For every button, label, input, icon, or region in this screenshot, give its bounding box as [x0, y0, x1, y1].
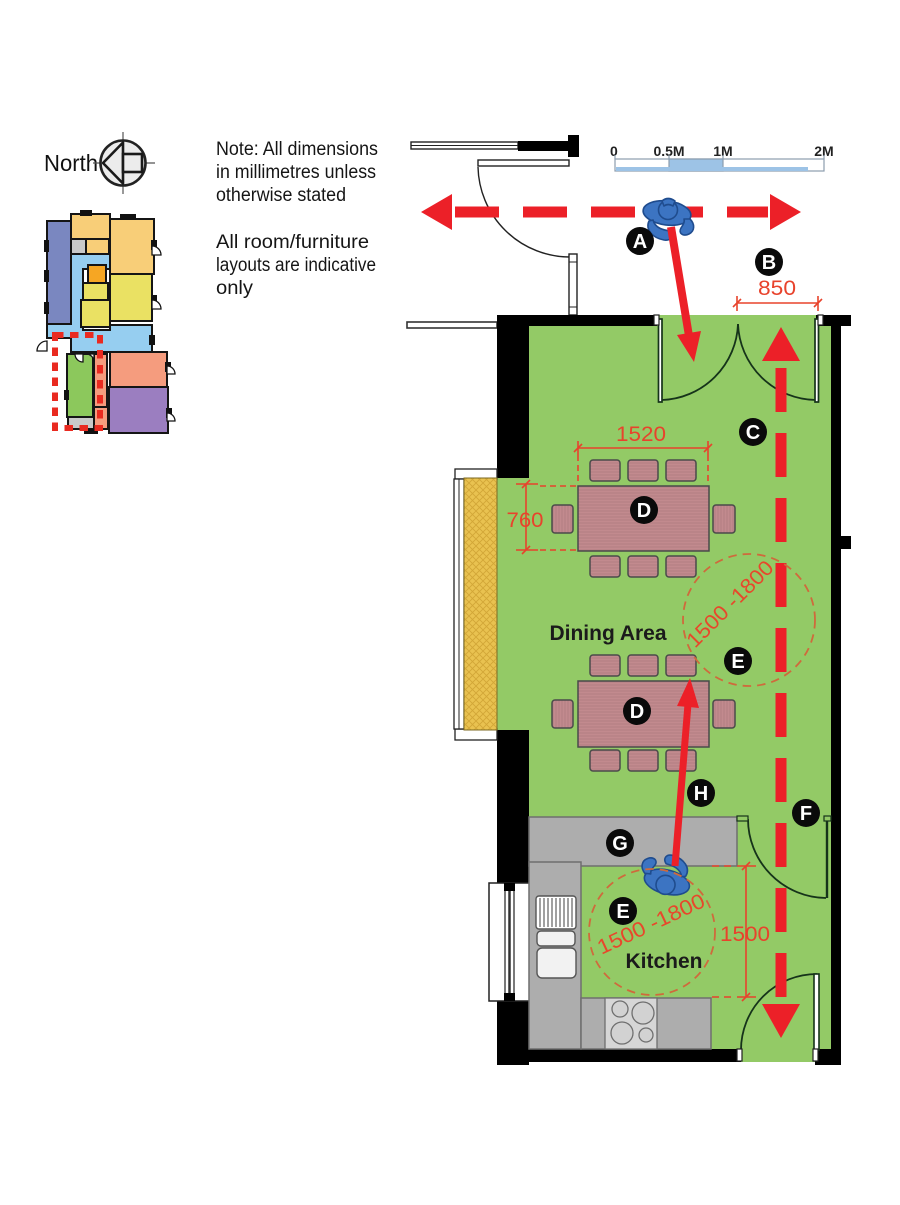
svg-text:D: D	[637, 500, 651, 522]
svg-text:1500: 1500	[720, 923, 770, 946]
svg-text:1520: 1520	[616, 423, 666, 446]
svg-text:Kitchen: Kitchen	[625, 950, 702, 973]
svg-text:G: G	[612, 833, 628, 855]
svg-text:E: E	[616, 901, 629, 923]
svg-text:A: A	[633, 231, 647, 253]
svg-text:F: F	[800, 803, 812, 825]
svg-text:H: H	[694, 783, 708, 805]
svg-text:North: North	[44, 150, 98, 176]
svg-text:Dining Area: Dining Area	[549, 622, 666, 645]
svg-text:850: 850	[758, 277, 796, 300]
svg-text:760: 760	[507, 509, 544, 532]
svg-text:E: E	[731, 651, 744, 673]
svg-text:C: C	[746, 422, 760, 444]
svg-text:D: D	[630, 701, 644, 723]
svg-text:B: B	[762, 252, 776, 274]
svg-text:0: 0	[610, 143, 618, 159]
